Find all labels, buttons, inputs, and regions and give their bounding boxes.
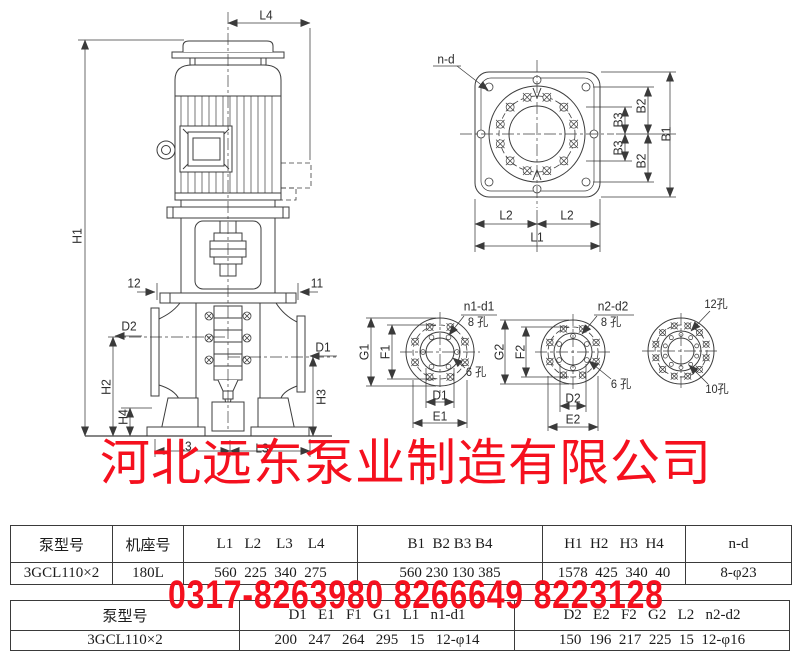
label-12-holes: 12孔	[704, 298, 727, 310]
dim-label-B3-bottom: B3	[612, 140, 625, 155]
dim-label-L1: L1	[530, 231, 543, 244]
callout-n1-d1: n1-d1	[464, 300, 495, 313]
t2-value-flange2-group: 150 196 217 225 15 12-φ16	[515, 631, 789, 650]
label-10-holes: 10孔	[705, 383, 728, 395]
table1-header-row: 泵型号 机座号 L1 L2 L3 L4 B1 B2 B3 B4 H1 H2 H3…	[11, 526, 791, 562]
lifting-eye	[157, 141, 175, 159]
label-8-holes-1: 8 孔	[468, 316, 488, 328]
label-8-holes-2: 8 孔	[601, 316, 621, 328]
label-6-holes-1: 6 孔	[466, 366, 486, 378]
dim-label-L2-left: L2	[499, 209, 512, 222]
pump-front-view	[85, 12, 336, 436]
dim-label-12: 12	[127, 277, 140, 290]
dim-label-B1: B1	[660, 126, 673, 141]
company-watermark: 河北远东泵业制造有限公司	[100, 437, 712, 490]
dim-label-E1: E1	[433, 410, 448, 423]
catalog-page: L4 H1 12 11 D2 D1 H2 H4 H3 L3 L3 n-d B2 …	[0, 0, 800, 663]
dim-label-B2-bottom: B2	[635, 153, 648, 168]
dim-label-D1: D1	[315, 341, 330, 354]
base-top-view	[460, 60, 614, 208]
t1-header-frame-size: 机座号	[113, 526, 184, 562]
t1-header-H-group: H1 H2 H3 H4	[543, 526, 686, 562]
dim-label-H4: H4	[117, 409, 130, 425]
dim-label-D2: D2	[121, 320, 136, 333]
dim-label-G2: G2	[493, 344, 506, 360]
t1-value-pump-model: 3GCL110×2	[11, 563, 113, 584]
dim-label-11: 11	[311, 277, 323, 290]
table2-data-row: 3GCL110×2 200 247 264 295 15 12-φ14 150 …	[11, 630, 789, 650]
dim-label-H3: H3	[315, 389, 328, 405]
dim-label-D2-flange: D2	[565, 392, 580, 405]
dim-label-F2: F2	[514, 345, 527, 359]
dim-label-L2-right: L2	[560, 209, 573, 222]
dim-label-B3-top: B3	[612, 112, 625, 127]
dim-label-G1: G1	[358, 344, 371, 360]
dim-label-H2: H2	[100, 379, 113, 395]
callout-n-d: n-d	[437, 53, 454, 66]
flange-view-3	[642, 313, 720, 390]
dim-label-L4: L4	[259, 9, 272, 22]
junction-box-hidden	[281, 163, 311, 200]
phone-watermark: 0317-8263980 8266649 8223128	[168, 573, 664, 618]
t2-value-pump-model: 3GCL110×2	[11, 631, 240, 650]
callout-n2-d2: n2-d2	[598, 300, 629, 313]
t1-value-n-d: 8-φ23	[686, 563, 791, 584]
t2-value-flange1-group: 200 247 264 295 15 12-φ14	[240, 631, 515, 650]
dim-label-B2-top: B2	[635, 98, 648, 113]
t1-header-B-group: B1 B2 B3 B4	[358, 526, 543, 562]
t1-header-pump-model: 泵型号	[11, 526, 113, 562]
dim-label-H1: H1	[71, 228, 84, 244]
terminal-box	[180, 126, 232, 172]
dim-label-E2: E2	[566, 413, 581, 426]
t1-header-L-group: L1 L2 L3 L4	[184, 526, 358, 562]
dim-label-D1-flange: D1	[432, 389, 447, 402]
t1-header-n-d: n-d	[686, 526, 791, 562]
label-6-holes-2: 6 孔	[611, 378, 631, 390]
dim-label-F1: F1	[379, 345, 392, 359]
